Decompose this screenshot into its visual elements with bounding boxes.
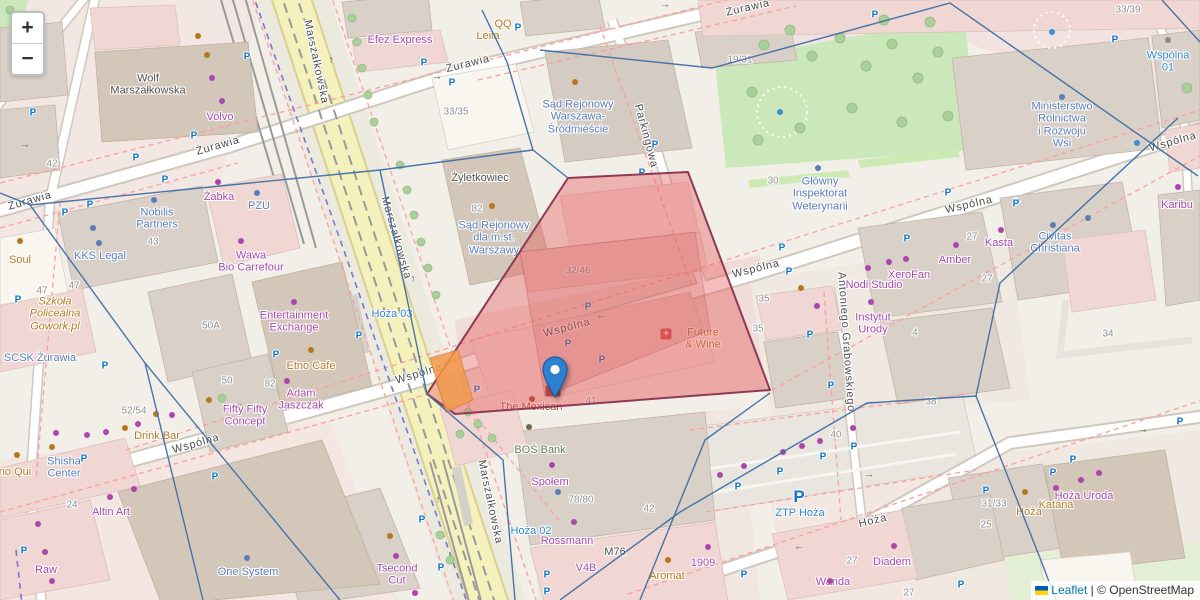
base-map-tiles: [0, 0, 1200, 600]
map-marker[interactable]: [542, 356, 568, 403]
attribution-bar: Leaflet | © OpenStreetMap: [1031, 581, 1200, 600]
zoom-out-button[interactable]: −: [12, 44, 43, 74]
osm-copyright: © OpenStreetMap: [1097, 583, 1194, 597]
attribution-separator: |: [1087, 583, 1097, 597]
zoom-control: + −: [10, 11, 45, 76]
zoom-in-button[interactable]: +: [12, 13, 43, 44]
marker-pin-icon: [543, 357, 567, 397]
leaflet-link[interactable]: Leaflet: [1051, 583, 1087, 597]
ukraine-flag-icon: [1035, 586, 1048, 595]
map-canvas[interactable]: ŻurawiaŻurawiaŻurawiaŻurawiaMarszałkowsk…: [0, 0, 1200, 600]
